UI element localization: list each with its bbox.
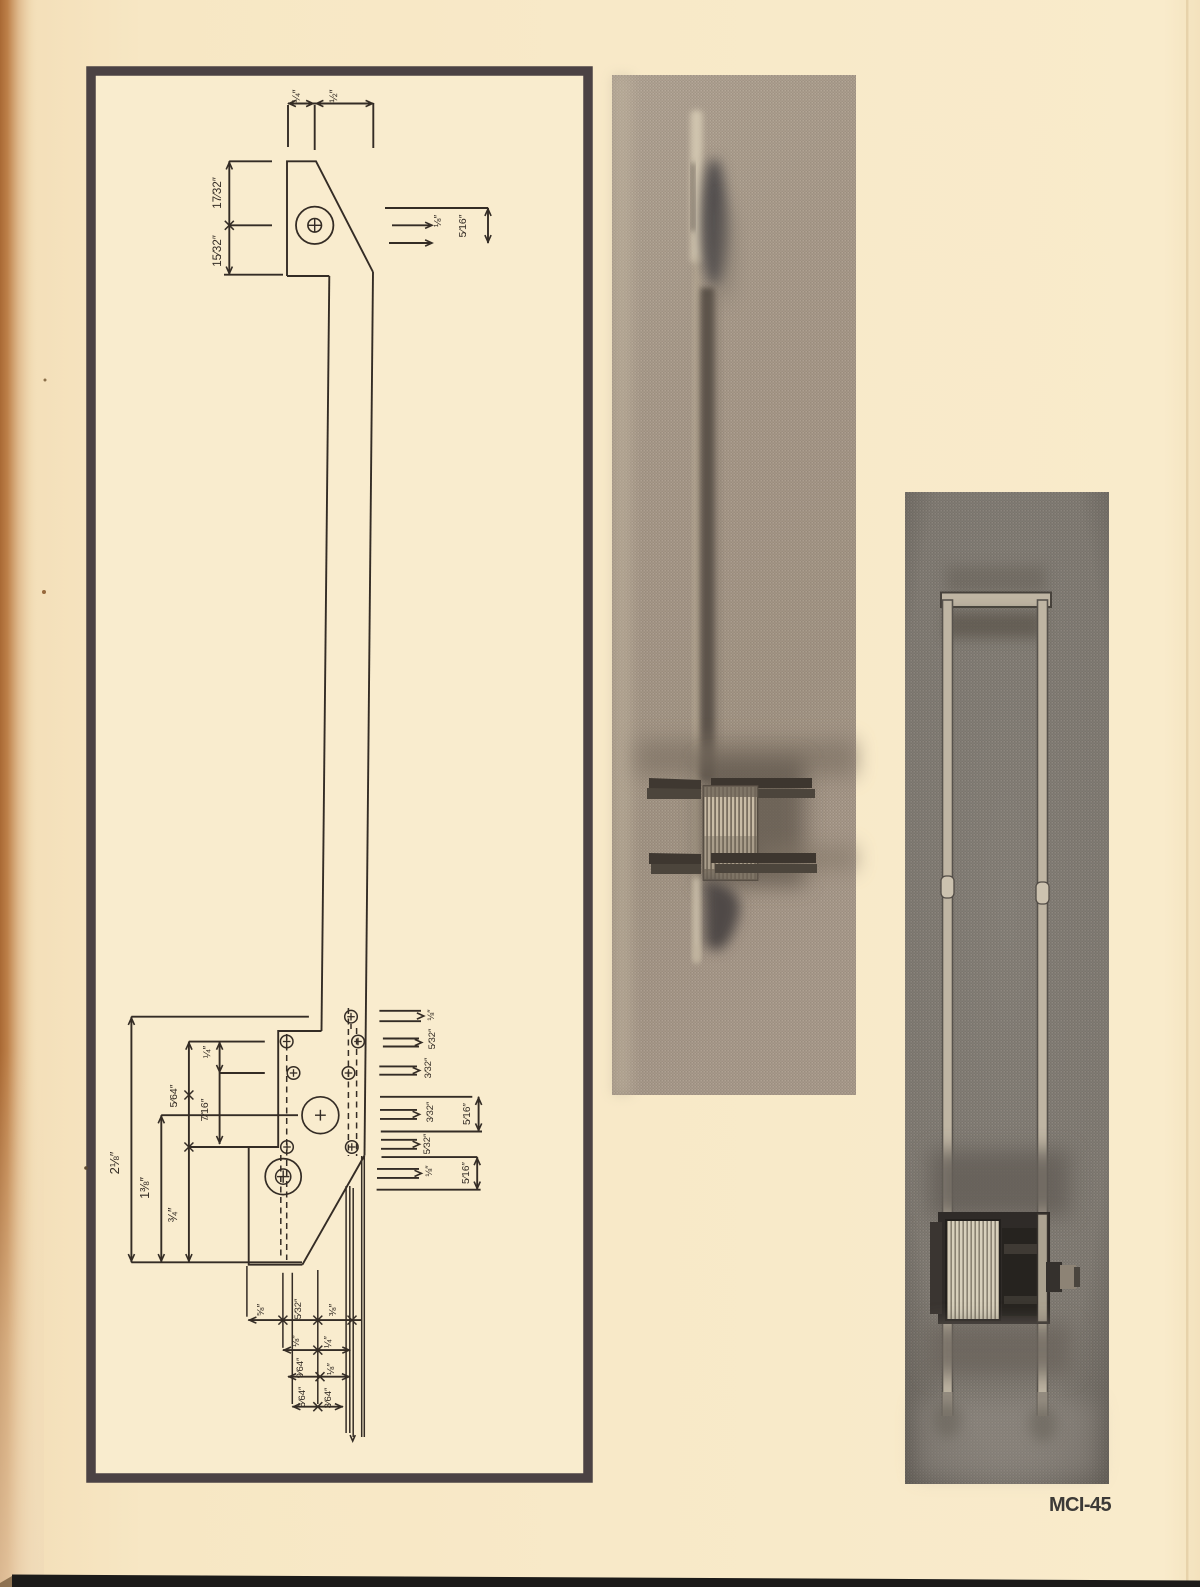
svg-text:5⁄16″: 5⁄16″ [457, 214, 469, 237]
svg-text:15⁄32″: 15⁄32″ [212, 235, 224, 267]
svg-text:¾″: ¾″ [166, 1207, 180, 1222]
svg-text:3⁄64″: 3⁄64″ [323, 1387, 334, 1408]
svg-text:5⁄32″: 5⁄32″ [422, 1133, 433, 1154]
svg-text:5⁄32″: 5⁄32″ [427, 1028, 438, 1049]
svg-text:5⁄16″: 5⁄16″ [462, 1103, 473, 1125]
svg-text:3⁄32″: 3⁄32″ [423, 1057, 434, 1078]
svg-text:5⁄64″: 5⁄64″ [297, 1386, 308, 1407]
svg-text:¼″: ¼″ [322, 1336, 334, 1348]
svg-text:⅛″: ⅛″ [326, 1363, 337, 1375]
svg-text:⅛″: ⅛″ [432, 214, 444, 227]
svg-text:3⁄32″: 3⁄32″ [425, 1101, 436, 1122]
svg-text:⅛″: ⅛″ [291, 1335, 302, 1347]
svg-text:5⁄16″: 5⁄16″ [461, 1162, 472, 1184]
svg-text:9⁄64″: 9⁄64″ [295, 1357, 306, 1378]
svg-text:5⁄32″: 5⁄32″ [293, 1298, 304, 1319]
svg-text:¼″: ¼″ [201, 1045, 213, 1058]
svg-text:5⁄64″: 5⁄64″ [168, 1084, 180, 1107]
svg-text:1⅜″: 1⅜″ [138, 1177, 152, 1199]
svg-text:17⁄32″: 17⁄32″ [212, 177, 224, 209]
svg-text:2⅛″: 2⅛″ [107, 1151, 122, 1174]
svg-text:½″: ½″ [328, 89, 340, 102]
svg-text:⅛″: ⅛″ [426, 1009, 437, 1021]
svg-text:⅝″: ⅝″ [255, 1303, 267, 1316]
svg-text:⅜″: ⅜″ [327, 1303, 339, 1316]
svg-text:7⁄16″: 7⁄16″ [199, 1098, 211, 1121]
svg-text:MCI-45: MCI-45 [1049, 1494, 1111, 1516]
svg-text:⅛″: ⅛″ [424, 1165, 435, 1177]
svg-text:¼″: ¼″ [291, 89, 303, 102]
